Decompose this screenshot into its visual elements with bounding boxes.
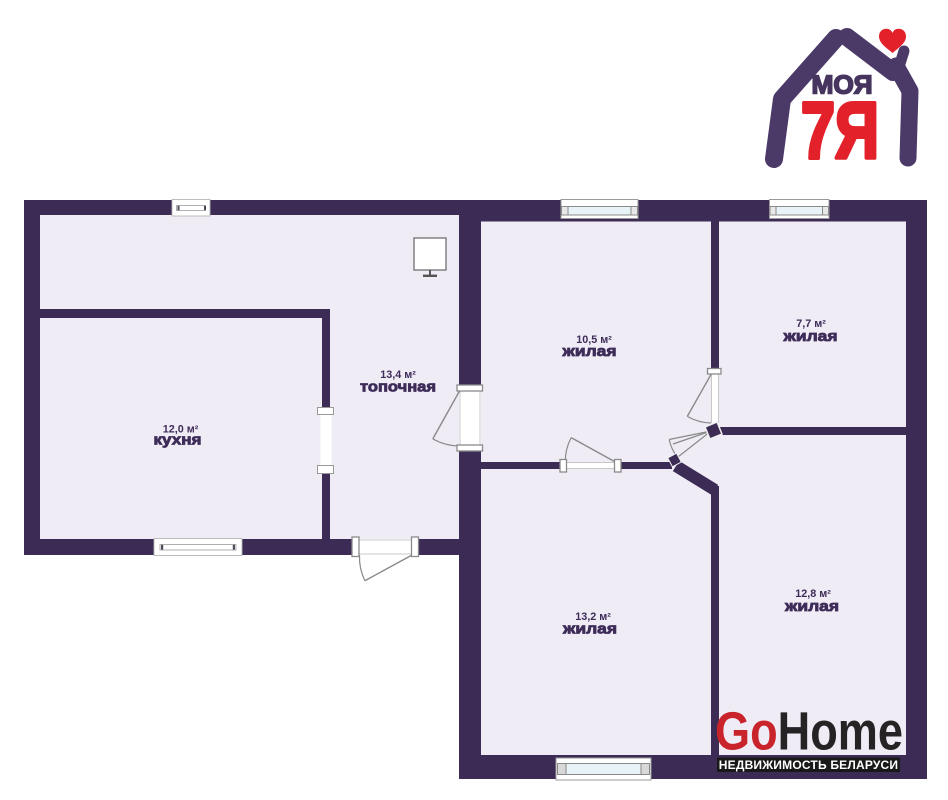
- svg-text:НЕДВИЖИМОСТЬ БЕЛАРУСИ: НЕДВИЖИМОСТЬ БЕЛАРУСИ: [719, 758, 898, 772]
- svg-text:жилая: жилая: [562, 621, 617, 638]
- svg-text:топочная: топочная: [360, 379, 436, 396]
- svg-text:GoHome: GoHome: [715, 702, 903, 762]
- svg-text:жилая: жилая: [784, 598, 839, 615]
- svg-text:жилая: жилая: [561, 343, 616, 360]
- svg-text:7Я: 7Я: [801, 86, 879, 175]
- svg-text:жилая: жилая: [782, 328, 837, 345]
- svg-text:кухня: кухня: [154, 432, 202, 449]
